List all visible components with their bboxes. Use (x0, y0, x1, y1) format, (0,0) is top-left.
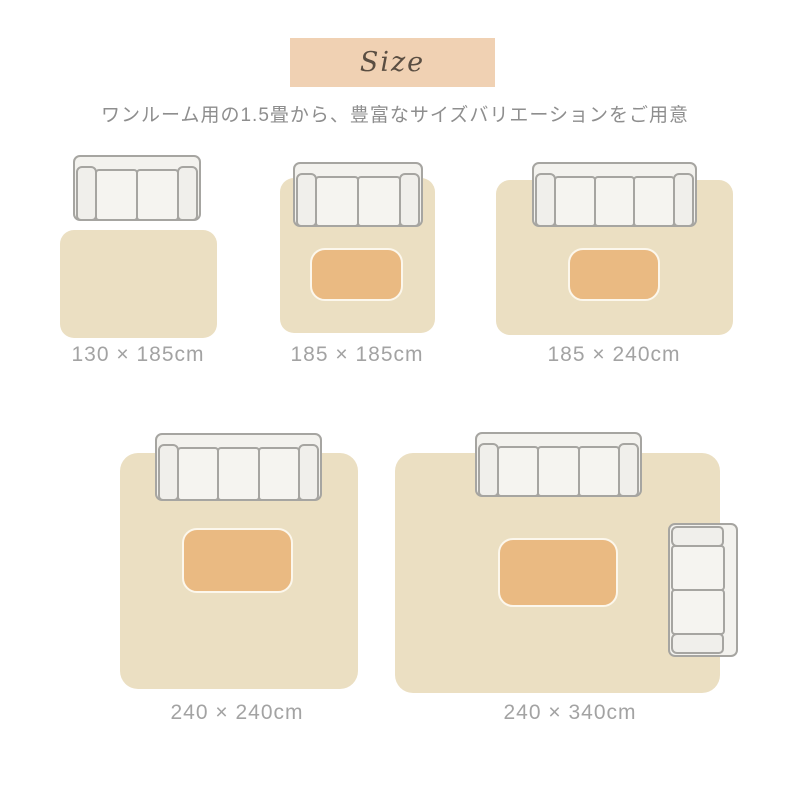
sofa-top-view-icon (532, 162, 697, 227)
sofa-seats (95, 169, 179, 221)
sofa-seat (177, 447, 219, 501)
sofa-armrest-right (399, 173, 420, 227)
sofa-seat (671, 589, 725, 635)
kotatsu-table-icon (568, 248, 660, 301)
size-heading: Size (360, 47, 425, 78)
sofa-seat (537, 446, 579, 497)
side-sofa-top-view-icon (668, 523, 738, 657)
sofa-seat (633, 176, 675, 227)
sofa-seat (497, 446, 539, 497)
size-diagram-240x340: 240 × 340cm (395, 432, 738, 728)
size-label: 185 × 240cm (514, 343, 714, 367)
sofa-seat (594, 176, 636, 227)
size-section-header: Size (290, 38, 495, 87)
sofa-top-view-icon (475, 432, 642, 497)
sofa-armrest-left (158, 444, 179, 501)
sofa-armrest-top (671, 526, 724, 547)
sofa-seat (136, 169, 179, 221)
size-label: 240 × 240cm (137, 701, 337, 725)
sofa-seats (554, 176, 675, 227)
sofa-seat (671, 545, 725, 591)
sofa-top-view-icon (73, 155, 201, 221)
sofa-seats (177, 447, 300, 501)
size-diagram-185x185: 185 × 185cm (257, 162, 457, 372)
sofa-armrest-left (296, 173, 317, 227)
sofa-seat (357, 176, 401, 227)
size-label: 185 × 185cm (257, 343, 457, 367)
size-subtitle: ワンルーム用の1.5畳から、豊富なサイズバリエーションをご用意 (0, 100, 790, 127)
sofa-seat (95, 169, 138, 221)
sofa-seat (578, 446, 620, 497)
sofa-seat (315, 176, 359, 227)
rug-size-guide: Size ワンルーム用の1.5畳から、豊富なサイズバリエーションをご用意 130… (0, 0, 790, 790)
sofa-armrest-left (76, 166, 97, 221)
sofa-seats (671, 545, 725, 635)
kotatsu-table-icon (498, 538, 618, 607)
sofa-armrest-right (673, 173, 694, 227)
sofa-top-view-icon (155, 433, 322, 501)
sofa-top-view-icon (293, 162, 423, 227)
sofa-armrest-right (177, 166, 198, 221)
sofa-armrest-right (618, 443, 639, 497)
size-label: 240 × 340cm (470, 701, 670, 725)
sofa-seat (554, 176, 596, 227)
sofa-armrest-left (535, 173, 556, 227)
sofa-seat (258, 447, 300, 501)
rug-shape (60, 230, 217, 338)
sofa-seats (497, 446, 620, 497)
size-diagram-130x185: 130 × 185cm (38, 155, 238, 370)
sofa-armrest-right (298, 444, 319, 501)
sofa-armrest-bottom (671, 633, 724, 654)
sofa-seat (217, 447, 259, 501)
kotatsu-table-icon (182, 528, 293, 593)
sofa-armrest-left (478, 443, 499, 497)
sofa-seats (315, 176, 401, 227)
size-label: 130 × 185cm (38, 343, 238, 367)
kotatsu-table-icon (310, 248, 403, 301)
size-diagram-185x240: 185 × 240cm (496, 162, 733, 372)
size-diagram-240x240: 240 × 240cm (120, 433, 358, 728)
